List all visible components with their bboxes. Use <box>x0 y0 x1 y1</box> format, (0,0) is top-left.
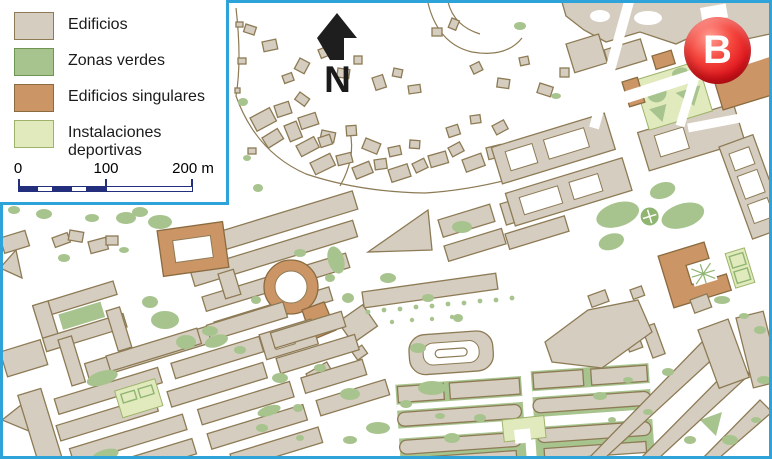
legend-label-zonas-verdes: Zonas verdes <box>68 48 165 70</box>
scale-bar: 0 100 200 m <box>14 160 214 200</box>
zonas-verdes-swatch-icon <box>14 48 54 76</box>
edificios-swatch-icon <box>14 12 54 40</box>
legend-item-edificios-singulares: Edificios singulares <box>14 84 226 112</box>
north-arrow: N <box>317 13 357 98</box>
scale-tick-100: 100 <box>93 160 118 177</box>
stadium-building <box>408 330 495 376</box>
city-map: Edificios Zonas verdes Edificios singula… <box>0 0 772 459</box>
instalaciones-deportivas-swatch-icon <box>14 120 54 148</box>
scale-tick-200: 200 m <box>172 160 214 177</box>
marker-b: B <box>684 17 751 84</box>
legend: Edificios Zonas verdes Edificios singula… <box>0 0 229 205</box>
legend-item-instalaciones-deportivas: Instalaciones deportivas <box>14 120 226 160</box>
scale-tick-0: 0 <box>14 160 22 177</box>
north-label: N <box>317 61 357 98</box>
edificios-singulares-swatch-icon <box>14 84 54 112</box>
marker-b-label: B <box>703 30 732 70</box>
legend-label-instalaciones-deportivas: Instalaciones deportivas <box>68 120 218 160</box>
legend-item-zonas-verdes: Zonas verdes <box>14 48 226 76</box>
legend-label-edificios: Edificios <box>68 12 128 34</box>
legend-label-edificios-singulares: Edificios singulares <box>68 84 205 106</box>
legend-item-edificios: Edificios <box>14 12 226 40</box>
orange-courtyard-building <box>157 222 229 277</box>
scale-bar-graphic <box>18 186 193 193</box>
north-arrow-icon <box>317 13 357 60</box>
